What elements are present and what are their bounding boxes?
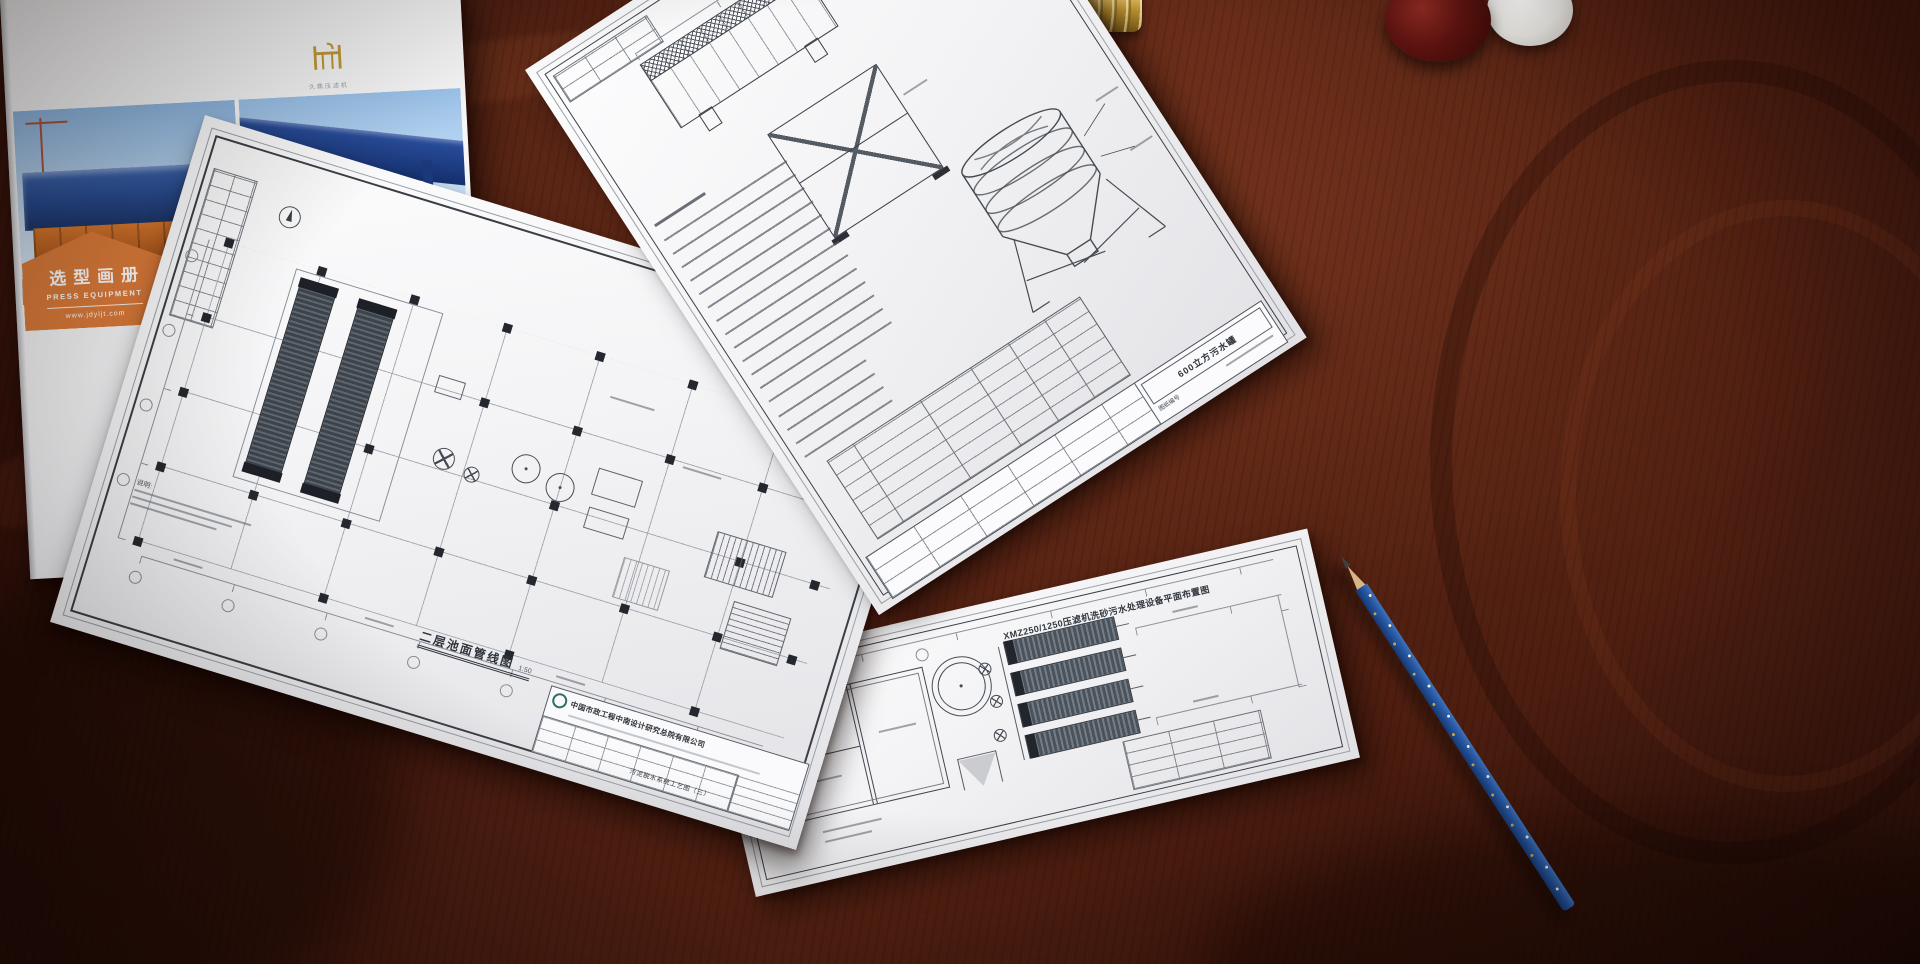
table-column-line xyxy=(853,444,904,522)
desk-scene: XMZ250/1250压滤机洗砂污水处理设备平面布置图 xyxy=(0,0,1920,964)
jiuding-logo-icon xyxy=(308,40,348,74)
table-column-line xyxy=(920,401,971,479)
badge-subtitle: PRESS EQUIPMENT xyxy=(46,288,142,302)
logo-caption: 久鼎压滤机 xyxy=(301,79,357,91)
institute-logo-icon xyxy=(551,691,570,710)
wood-grain-ring xyxy=(1560,200,1920,792)
pencil-shadow xyxy=(1329,564,1571,925)
table-column-line xyxy=(970,368,1021,446)
brand-logo-block: 久鼎压滤机 xyxy=(299,39,357,91)
plan-scale: 1:50 xyxy=(517,665,532,676)
white-cup xyxy=(1487,0,1573,46)
wood-grain-ring xyxy=(1430,60,1920,864)
basin-label xyxy=(879,723,916,733)
badge-url: www.jdyljt.com xyxy=(66,310,126,320)
red-teapot xyxy=(1385,0,1491,62)
badge-title: 选型画册 xyxy=(48,260,145,290)
pencil-body xyxy=(1355,583,1575,912)
table-column-line xyxy=(1008,343,1059,421)
table-column-line xyxy=(1044,320,1095,398)
badge-divider xyxy=(47,303,143,309)
basin-divider xyxy=(846,684,878,804)
pencil xyxy=(1335,552,1575,912)
